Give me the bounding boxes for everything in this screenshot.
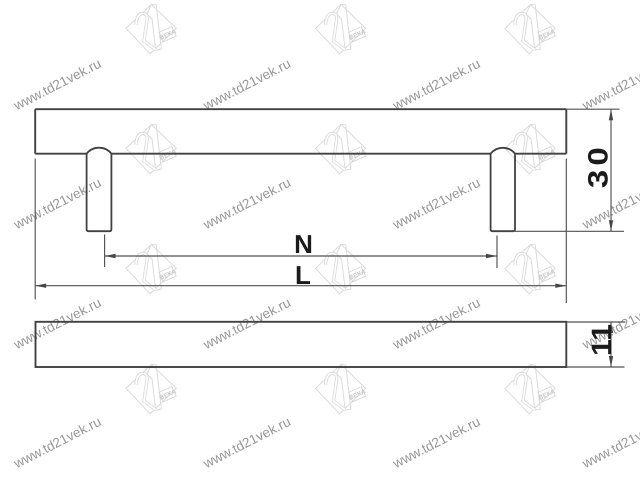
svg-text:30: 30 (582, 143, 613, 188)
svg-text:N: N (294, 229, 313, 259)
svg-text:L: L (295, 260, 311, 290)
svg-text:11: 11 (586, 324, 617, 356)
